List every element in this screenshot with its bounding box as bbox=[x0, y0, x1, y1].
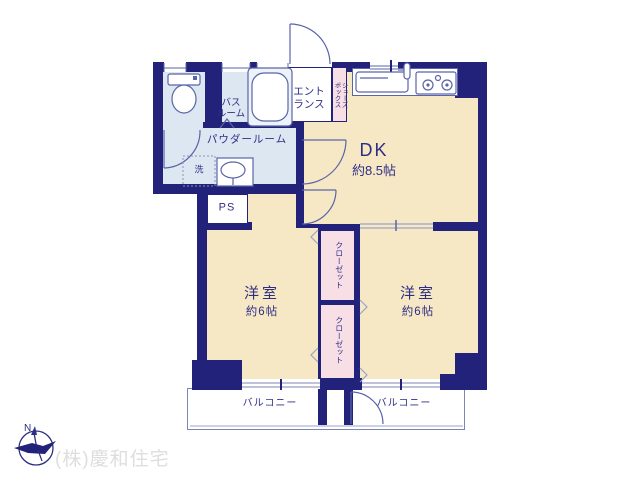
room-bedroom-left bbox=[205, 226, 320, 382]
label-bathroom-line1: バス bbox=[217, 98, 245, 109]
label-powder-room: パウダールーム bbox=[207, 134, 287, 147]
pillar-bottom-left bbox=[192, 360, 242, 390]
company-watermark: (株)慶和住宅 bbox=[55, 444, 170, 471]
label-bedroom-left: 洋室 bbox=[244, 285, 280, 303]
label-bathroom: バス ルーム bbox=[217, 98, 245, 121]
label-bedroom-right-size: 約6帖 bbox=[402, 306, 434, 320]
label-balcony-left: バルコニー bbox=[243, 398, 298, 410]
label-entrance-line2: ランス bbox=[293, 98, 325, 111]
room-toilet bbox=[160, 67, 207, 128]
label-shoe-box: シューズ ボックス bbox=[333, 82, 347, 108]
pillar-bottom-right-b bbox=[440, 374, 487, 390]
compass-icon: N bbox=[14, 423, 56, 465]
entrance-door-arc bbox=[290, 24, 330, 64]
label-entrance-line1: エント bbox=[293, 85, 325, 98]
label-bedroom-right: 洋室 bbox=[400, 285, 436, 303]
label-balcony-right: バルコニー bbox=[377, 398, 432, 410]
wall-dk-west bbox=[296, 122, 304, 228]
compass-n-label: N bbox=[24, 423, 31, 434]
wall-right bbox=[478, 62, 487, 390]
label-shoe-box-line1: シューズ bbox=[340, 82, 347, 108]
wall-left-upper bbox=[153, 62, 163, 194]
wall-dk-divider-thick bbox=[433, 222, 478, 231]
label-entrance: エント ランス bbox=[293, 85, 325, 110]
label-ps: PS bbox=[219, 201, 236, 214]
wall-closet-mid bbox=[318, 300, 360, 305]
wall-closet-top bbox=[318, 226, 360, 231]
label-closet-front: クローゼット bbox=[334, 241, 344, 289]
kitchen-counter bbox=[352, 68, 458, 96]
label-bedroom-left-size: 約6帖 bbox=[246, 306, 278, 320]
pillar-top-right bbox=[455, 62, 487, 98]
wall-powder-bottom bbox=[153, 184, 304, 194]
label-closet-back: クローゼット bbox=[334, 316, 344, 364]
wall-bath-bottom bbox=[203, 122, 296, 128]
label-dk: DK bbox=[359, 140, 388, 162]
balcony-divider-b bbox=[344, 388, 353, 425]
label-bathroom-line2: ルーム bbox=[217, 109, 245, 120]
label-washer: 洗 bbox=[194, 165, 203, 176]
label-shoe-box-line2: ボックス bbox=[333, 82, 340, 108]
label-dk-size: 約8.5帖 bbox=[352, 163, 396, 179]
balcony-divider-a bbox=[318, 388, 327, 425]
floor-plan: N バス ルーム エント ランス シューズ ボックス パウダールーム 洗 PS … bbox=[0, 0, 640, 480]
